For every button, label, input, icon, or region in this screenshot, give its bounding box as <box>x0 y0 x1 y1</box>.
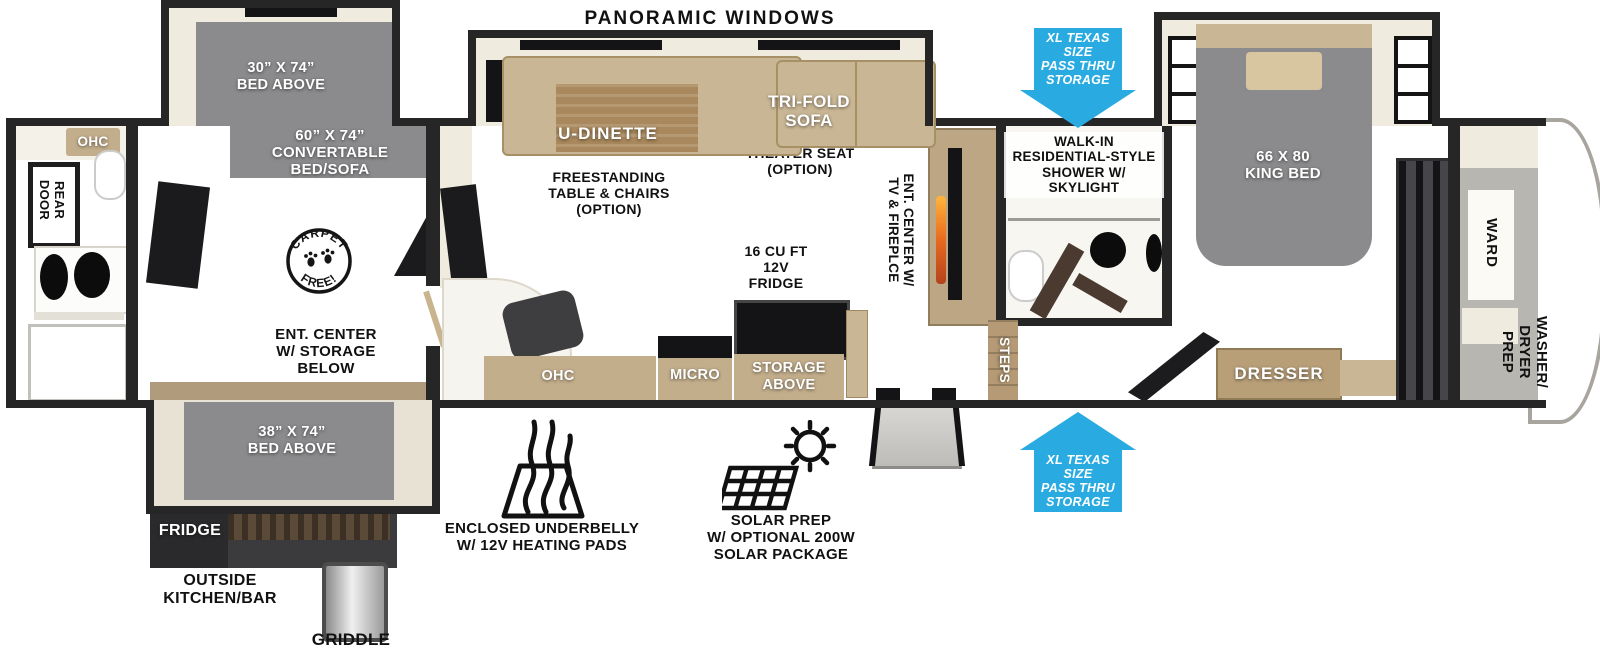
living-slideout-window-left <box>520 40 662 50</box>
ent-center-storage-label: ENT. CENTER W/ STORAGE BELOW <box>246 326 406 377</box>
king-bed-pillow2 <box>1246 52 1322 90</box>
bedroom-slideout-wall-top <box>1154 12 1440 20</box>
underbelly-label: ENCLOSED UNDERBELLY W/ 12V HEATING PADS <box>428 520 656 554</box>
bedroom-closet <box>1396 158 1454 404</box>
storage-above-cabinet: STORAGE ABOVE <box>734 354 844 400</box>
bunk-bed-30-label: 30” X 74” BED ABOVE <box>201 60 361 93</box>
entry-steps <box>872 408 962 469</box>
shower-glass-line <box>1008 218 1160 221</box>
solar-panel-icon <box>722 420 842 515</box>
pass-thru-bottom-label: XL TEXAS SIZE PASS THRU STORAGE <box>1034 453 1122 510</box>
rear-bath-toilet <box>94 150 126 200</box>
rear-bath-ohc-label: OHC <box>78 134 109 149</box>
wall-left <box>6 118 16 408</box>
garage-slideout-wall-right <box>432 400 440 514</box>
dresser: DRESSER <box>1216 348 1342 400</box>
entry-jamb-right <box>932 388 956 400</box>
rear-bath-counter-edge <box>34 312 124 320</box>
outside-fridge-label: FRIDGE <box>152 522 228 540</box>
panoramic-windows-label: PANORAMIC WINDOWS <box>560 8 860 30</box>
micro-label: MICRO <box>656 367 734 384</box>
bunk-cabinet-band <box>150 382 428 400</box>
entry-jamb-left <box>876 388 900 400</box>
wall-top-4 <box>1434 118 1546 126</box>
ent-center-tv-label: ENT. CENTER W/ TV & FIREPLCE <box>880 155 916 305</box>
ent-center-tv-screen <box>948 148 962 300</box>
bunk-slideout-wall-left <box>161 0 169 126</box>
microwave <box>658 336 732 358</box>
wall-bottom-1 <box>6 400 150 408</box>
bedroom-slideout-wall-left <box>1154 12 1162 126</box>
rear-door-label: REAR DOOR <box>32 164 66 236</box>
griddle-label: GRIDDLE <box>300 630 402 649</box>
living-slideout-window-right <box>758 40 900 50</box>
pass-thru-top-label: XL TEXAS SIZE PASS THRU STORAGE <box>1034 31 1122 88</box>
garage-slideout-wall-left <box>146 400 154 514</box>
wall-rearbath-right <box>126 126 138 400</box>
pass-thru-arrowhead-bottom <box>1020 412 1136 450</box>
wall-top-1 <box>6 118 166 126</box>
living-slideout-wall-right <box>925 30 933 126</box>
bedroom-slideout-wall-right <box>1432 12 1440 126</box>
garage-slideout-wall-bottom <box>146 506 440 514</box>
carpet-free-badge: CARPET FREE! <box>284 226 354 296</box>
king-bed-label: 66 X 80 KING BED <box>1213 148 1353 182</box>
wall-bunk-living-upper <box>426 126 440 286</box>
fridge-16-label: 16 CU FT 12V FRIDGE <box>716 244 836 292</box>
solar-label: SOLAR PREP W/ OPTIONAL 200W SOLAR PACKAG… <box>686 512 876 563</box>
u-dinette-label: U-DINETTE <box>538 124 678 143</box>
dresser-extension <box>1340 360 1402 396</box>
mid-bath-sink <box>1090 232 1126 268</box>
wall-bunk-living-lower <box>426 346 440 400</box>
walk-in-shower-label: WALK-IN RESIDENTIAL-STYLE SHOWER W/ SKYL… <box>1004 132 1164 198</box>
outside-kitchen-label: OUTSIDE KITCHEN/BAR <box>135 572 305 608</box>
bunk-slideout-window <box>245 8 337 17</box>
pass-thru-arrow-top: XL TEXAS SIZE PASS THRU STORAGE <box>1034 28 1122 90</box>
washer-dryer-prep-label: WASHER/ DRYER PREP <box>1498 300 1550 404</box>
wall-top-2 <box>394 118 474 126</box>
outside-bar-top <box>228 514 390 540</box>
ward-label: WARD <box>1482 198 1500 288</box>
bunk-slideout-wall-right <box>392 0 400 126</box>
living-slideout-wall-top <box>468 30 933 38</box>
king-bed-headboard2 <box>1196 24 1372 48</box>
wall-bottom-2 <box>436 400 1546 408</box>
rear-bath-sink-left <box>40 254 68 300</box>
garage-bed-38-label: 38” X 74” BED ABOVE <box>212 424 372 457</box>
floorplan-diagram: OHC REAR DOOR 60” X 74” CONVERTABLE BED/… <box>0 0 1600 666</box>
steps-label: STEPS <box>994 320 1012 400</box>
convertible-bed-label: 60” X 74” CONVERTABLE BED/SOFA <box>240 127 420 178</box>
heating-pads-icon <box>488 416 598 520</box>
tri-fold-sofa-label: TRI-FOLD SOFA <box>744 92 874 131</box>
pass-thru-arrowhead-top <box>1020 90 1136 128</box>
bunk-slideout-wall-top <box>161 0 400 8</box>
wall-midbath-bottom <box>996 318 1172 326</box>
kitchen-ohc-label: OHC <box>528 368 588 385</box>
fridge-12v <box>734 300 850 360</box>
rear-bath-sink-right <box>74 252 110 298</box>
dresser-label: DRESSER <box>1234 364 1323 383</box>
fireplace-flame <box>936 196 946 284</box>
pass-thru-arrow-bottom: XL TEXAS SIZE PASS THRU STORAGE <box>1034 450 1122 512</box>
living-slideout-wall-left <box>468 30 476 126</box>
wall-bedroom-front <box>1448 126 1460 400</box>
side-drawers <box>846 310 868 398</box>
freestanding-table-label: FREESTANDING TABLE & CHAIRS (OPTION) <box>534 170 684 218</box>
rear-bath-shower <box>28 324 128 402</box>
mid-bath-sink-small <box>1146 234 1162 272</box>
storage-above-label: STORAGE ABOVE <box>752 360 826 393</box>
bedroom-window-right <box>1394 36 1432 124</box>
front-shelf-top <box>1460 126 1538 168</box>
